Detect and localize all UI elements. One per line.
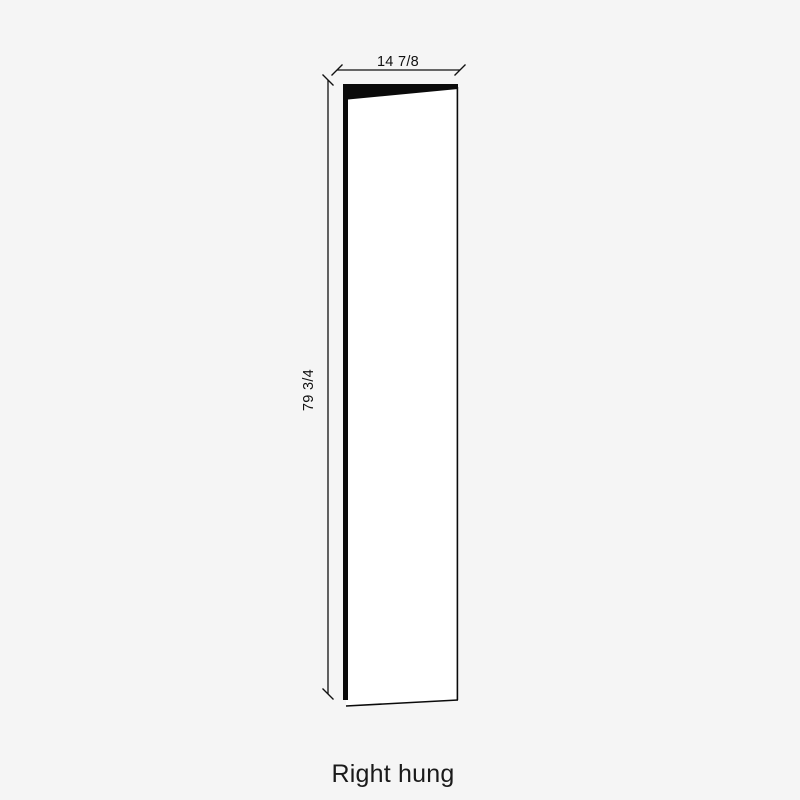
door-face — [346, 87, 457, 706]
width-dimension-label: 14 7/8 — [377, 54, 419, 70]
height-dimension: 79 3/4 — [301, 75, 334, 700]
door-diagram: 14 7/8 79 3/4 Right hung — [0, 0, 800, 800]
height-dimension-label: 79 3/4 — [301, 369, 317, 411]
caption: Right hung — [332, 760, 455, 788]
door-diagram-canvas: 14 7/8 79 3/4 Right hung — [0, 0, 800, 800]
door-left-edge — [343, 84, 348, 700]
width-dimension: 14 7/8 — [332, 54, 466, 76]
